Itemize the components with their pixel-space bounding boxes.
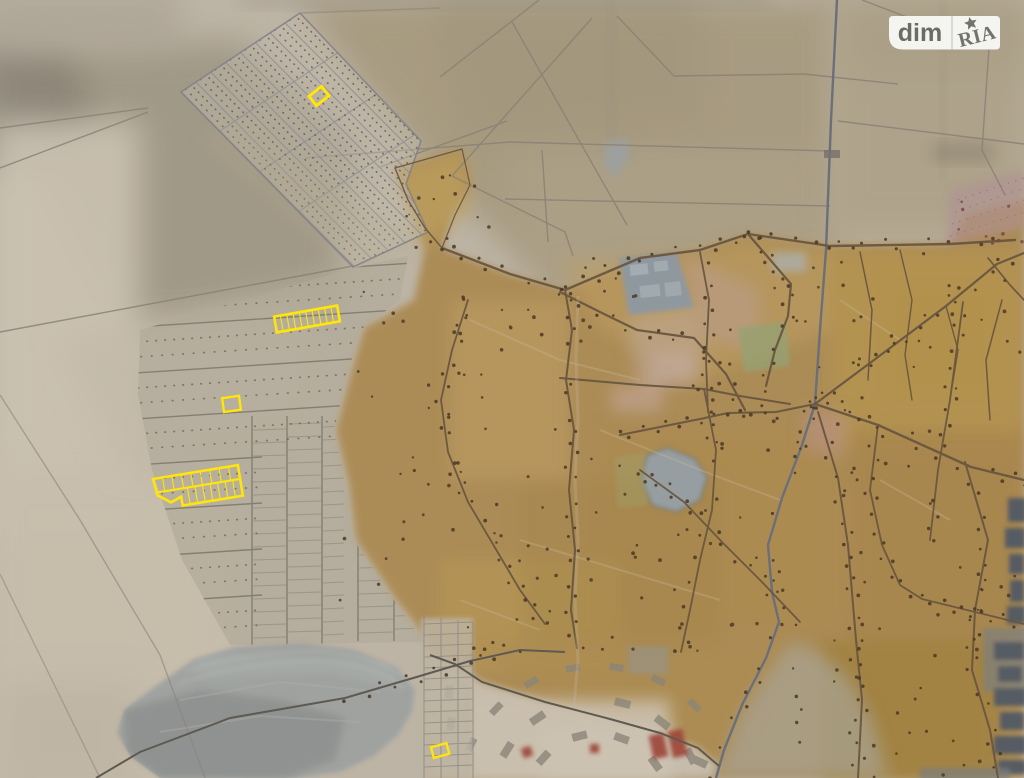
svg-text:dim: dim <box>898 19 942 47</box>
